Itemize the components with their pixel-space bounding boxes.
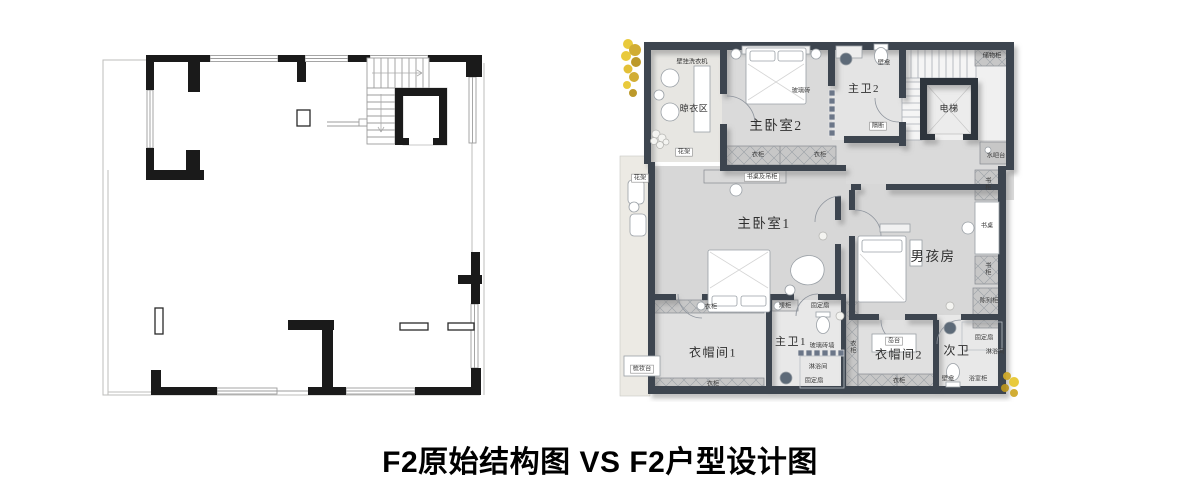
tag-niche-top: 壁龛 bbox=[878, 59, 890, 66]
room-label-master-bath1: 主卫1 bbox=[775, 333, 807, 349]
tag-fixed-sash-top: 固定扇 bbox=[811, 302, 830, 309]
tag-island: 岛台 bbox=[885, 337, 902, 345]
tag-partition: 隔断 bbox=[869, 122, 886, 130]
tag-washer: 壁挂洗衣机 bbox=[677, 58, 708, 65]
tag-wardrobe-c1-top: 衣柜 bbox=[705, 303, 717, 310]
tag-fixed-sash-bath2: 固定扇 bbox=[975, 334, 994, 341]
design-plan: 晾衣区 主卧室2 主卫2 电梯 主卧室1 男孩房 衣帽间1 主卫1 衣帽间2 次… bbox=[618, 38, 1024, 402]
room-label-closet2: 衣帽间2 bbox=[875, 346, 923, 363]
structure-plan-drawing bbox=[100, 42, 500, 402]
tag-shower2: 淋浴间 bbox=[986, 348, 1005, 355]
tag-desk-hanging: 书桌及吊柜 bbox=[744, 173, 780, 181]
tag-flower-rack-side: 花架 bbox=[631, 174, 648, 182]
tag-wardrobe-m2-right: 衣柜 bbox=[814, 151, 826, 158]
room-label-second-bath: 次卫 bbox=[943, 342, 970, 359]
elevator-shaft bbox=[395, 88, 447, 145]
tag-flower-rack-top: 花架 bbox=[675, 148, 692, 156]
low-wall bbox=[327, 119, 367, 126]
tag-glass-brick: 玻璃砖 bbox=[792, 87, 811, 94]
tag-bookcase-top: 书柜 bbox=[983, 177, 990, 191]
original-structure-plan bbox=[100, 42, 500, 402]
tag-shower1: 淋浴间 bbox=[809, 363, 828, 370]
tag-dressing-table: 梳妆台 bbox=[630, 365, 654, 373]
tag-wardrobe-m2-left: 衣柜 bbox=[752, 151, 764, 158]
tag-storage-cabinet: 储物柜 bbox=[983, 52, 1002, 59]
tag-wardrobe-mid-strip: 衣柜 bbox=[848, 340, 855, 354]
tag-vanity-bath2: 浴室柜 bbox=[969, 375, 988, 382]
tag-wardrobe-c1-bottom: 衣柜 bbox=[707, 380, 719, 387]
room-label-laundry: 晾衣区 bbox=[680, 102, 709, 115]
tag-desk: 书桌 bbox=[981, 222, 993, 229]
room-label-master-bedroom1: 主卧室1 bbox=[737, 212, 790, 232]
room-label-boys-room: 男孩房 bbox=[911, 245, 956, 265]
tag-wardrobe-c2: 衣柜 bbox=[893, 377, 905, 384]
tag-niche-bath2: 壁龛 bbox=[942, 375, 954, 382]
tag-fixed-sash-bottom: 固定扇 bbox=[805, 377, 824, 384]
tag-bookcase-mid: 书柜 bbox=[983, 262, 990, 276]
tag-display-cabinet: 陈列柜 bbox=[980, 297, 999, 304]
page-title: F2原始结构图 VS F2户型设计图 bbox=[0, 437, 1200, 481]
room-label-master-bath2: 主卫2 bbox=[848, 80, 880, 96]
tag-low-cabinet: 矮柜 bbox=[779, 302, 791, 309]
tag-water-bar: 水吧台 bbox=[987, 152, 1006, 159]
room-label-elevator: 电梯 bbox=[939, 102, 958, 115]
room-label-master-bedroom2: 主卧室2 bbox=[749, 114, 802, 134]
tag-glass-brick-wall: 玻璃砖墙 bbox=[810, 342, 835, 349]
room-label-closet1: 衣帽间1 bbox=[689, 344, 737, 361]
